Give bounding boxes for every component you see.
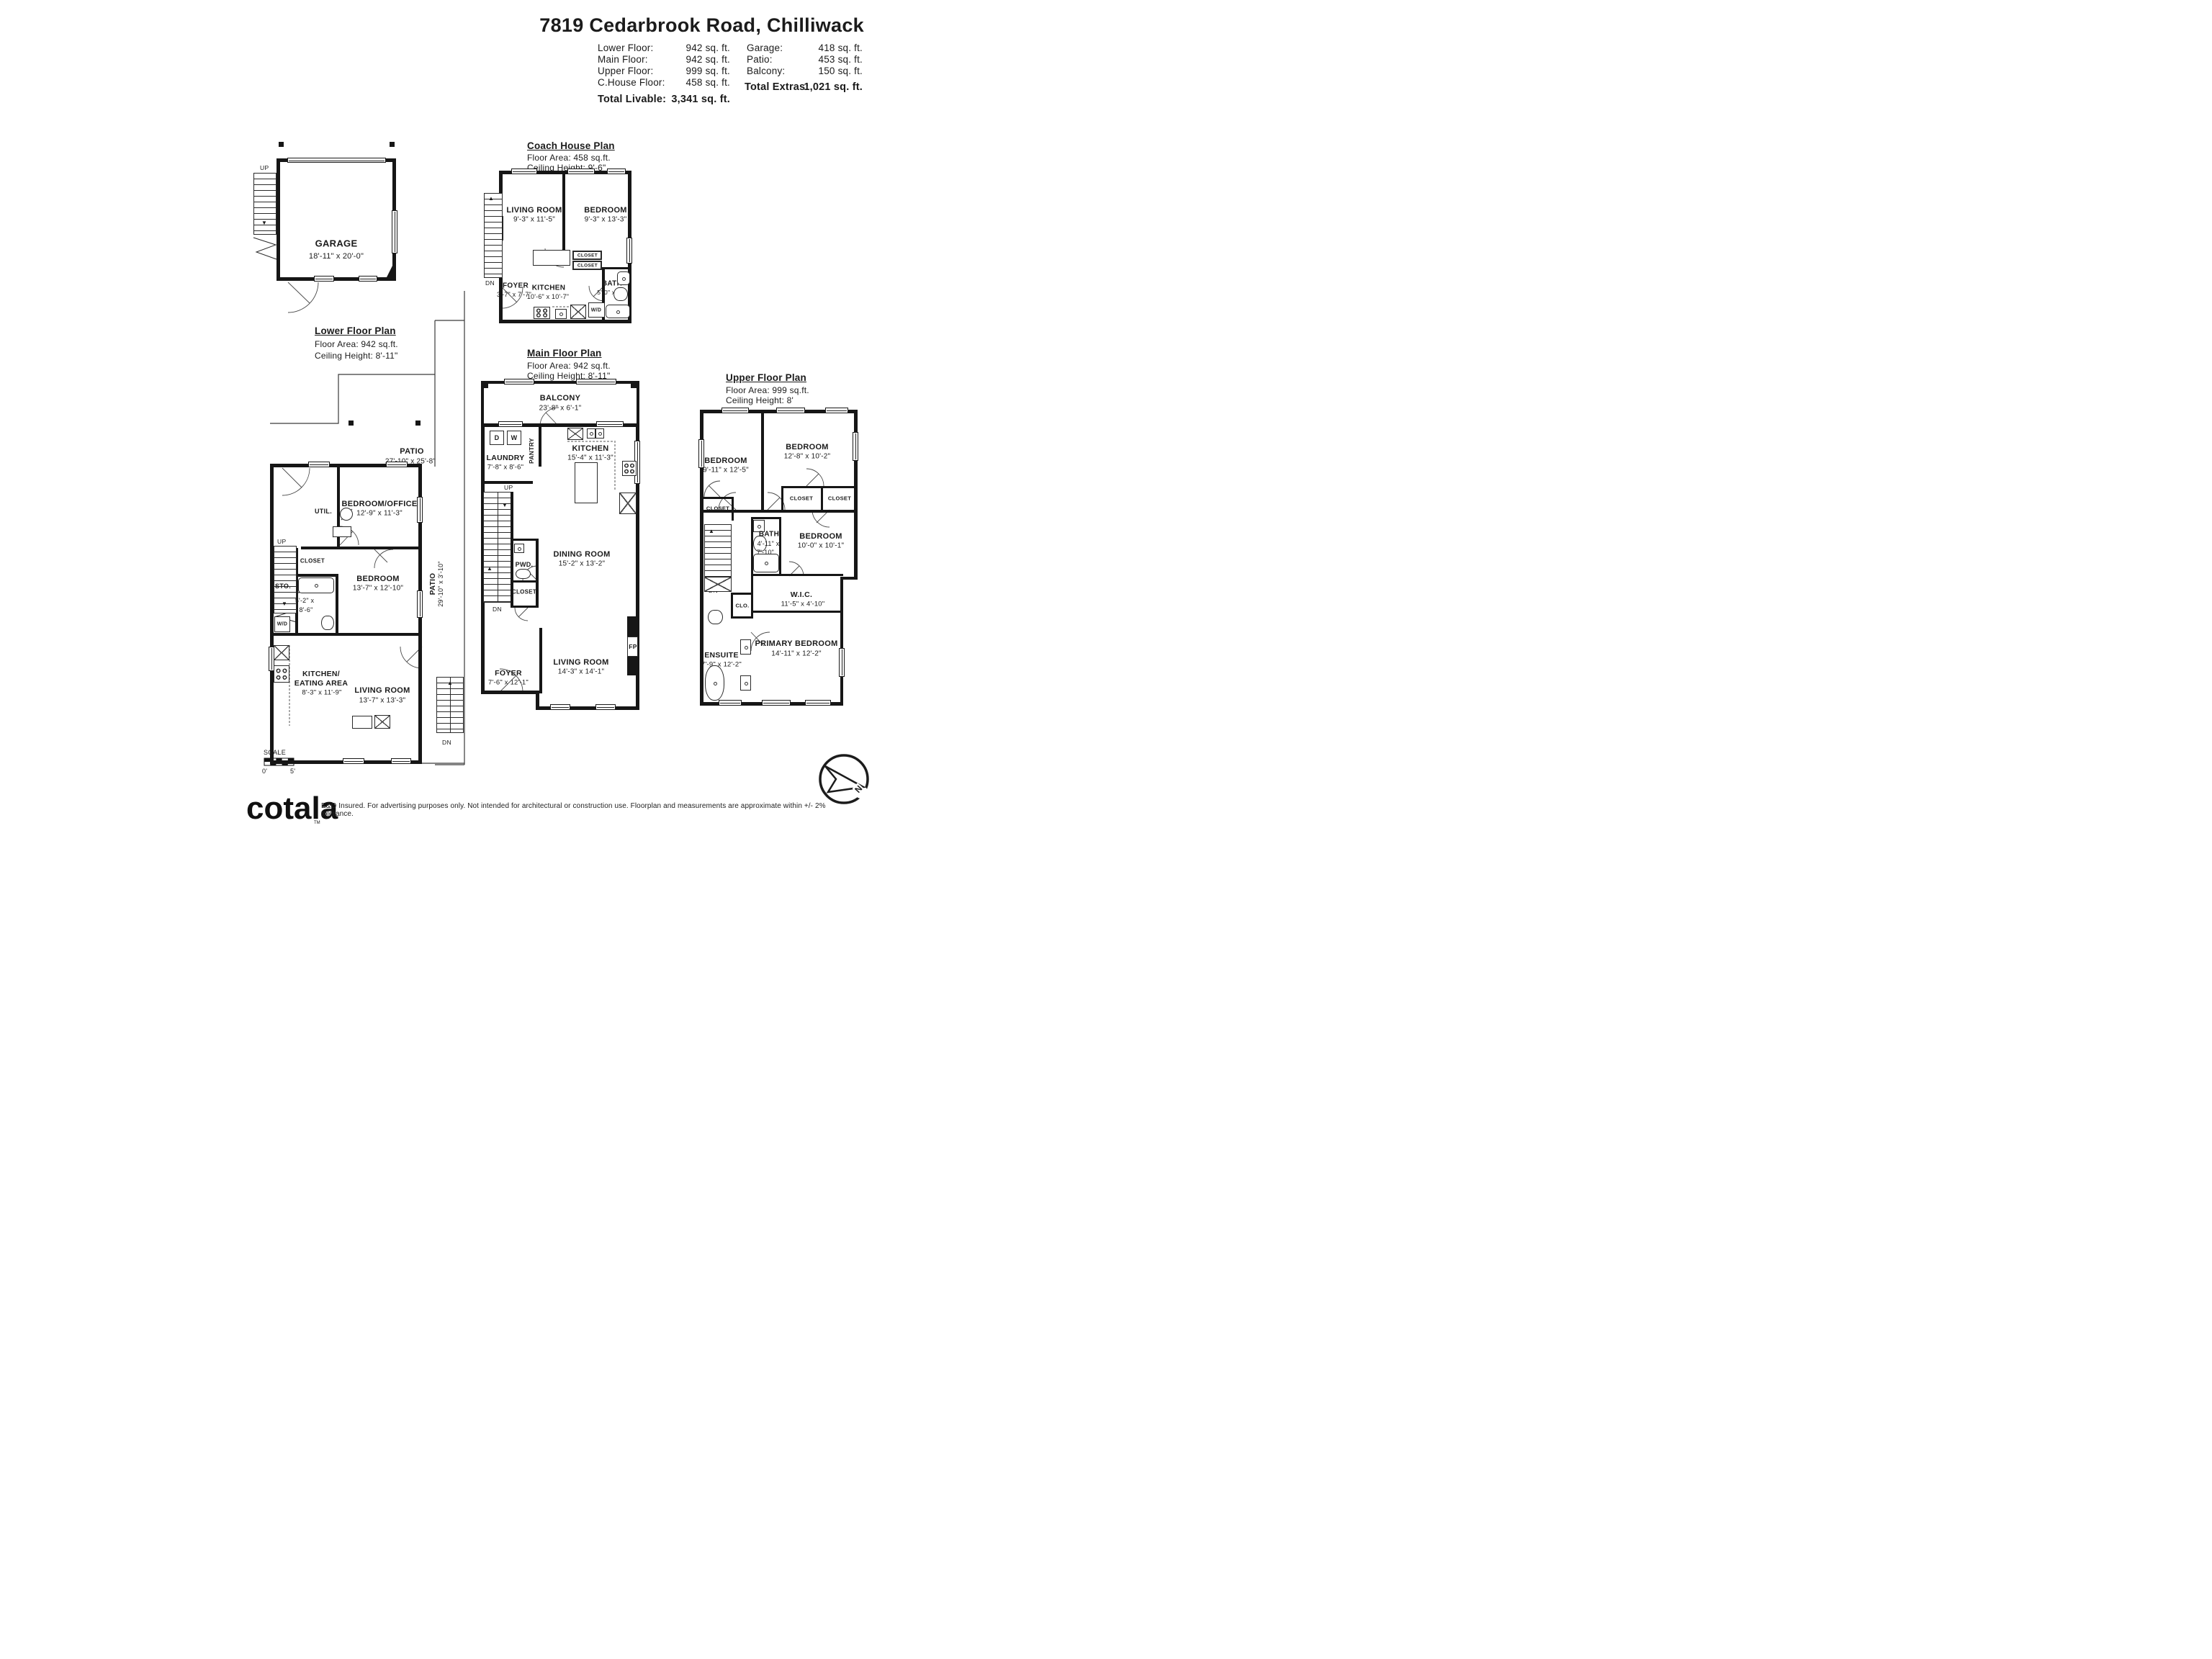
washer-dryer-label: W/D — [277, 622, 288, 627]
stat-value-main-floor: 942 sq. ft. — [648, 54, 730, 65]
stairs-up-arrow-icon: ▲ — [447, 680, 453, 686]
room-dims-laundry: 7'-8" x 8'-6" — [487, 464, 523, 472]
scale-label: SCALE — [264, 749, 286, 756]
room-label-kitchen-main: KITCHEN — [572, 444, 609, 453]
closet-label: CLOSET — [512, 589, 536, 595]
window — [719, 700, 742, 706]
closet-label: CLOSET — [577, 264, 598, 269]
room-label-lower-kitchen-1: KITCHEN/ — [302, 670, 340, 678]
garage-door — [287, 158, 386, 163]
range-icon — [567, 428, 583, 440]
window — [308, 462, 330, 467]
window — [343, 758, 364, 764]
stair-rail — [498, 492, 498, 603]
plan-title-main: Main Floor Plan — [527, 348, 602, 359]
fireplace-label: FP — [629, 643, 637, 650]
room-label-laundry: LAUNDRY — [486, 454, 524, 462]
dryer-label: D — [495, 434, 500, 441]
wall — [536, 539, 539, 608]
stairs-up-label: UP — [260, 164, 269, 171]
window — [576, 379, 616, 385]
washer-label: W — [511, 434, 518, 441]
wall — [336, 574, 338, 636]
stat-value-total-extras: 1,021 sq. ft. — [785, 81, 863, 93]
toilet-icon — [613, 287, 628, 301]
room-label-coach-foyer: FOYER — [503, 282, 529, 290]
stairs-dn-label: DN — [442, 739, 451, 746]
stove-burners-icon — [534, 307, 550, 319]
ensuite-sink-icon — [740, 675, 751, 691]
post-marker — [390, 142, 395, 147]
room-label-sto: STO. — [275, 583, 291, 590]
wall — [843, 577, 858, 580]
wall — [821, 486, 823, 510]
room-dims-coach-bedroom: 9'-3" x 13'-3" — [585, 216, 627, 224]
fridge-icon — [619, 493, 637, 514]
room-dims-balcony: 23'-8" x 6'-1" — [539, 405, 582, 413]
post-marker — [415, 421, 421, 426]
stove-burners-icon — [622, 461, 637, 476]
stat-value-balcony: 150 sq. ft. — [781, 66, 863, 76]
room-label-util: UTIL. — [315, 508, 332, 515]
room-dims-coach-kitchen: 10'-6" x 10'-7" — [527, 293, 569, 300]
page-title: 7819 Cedarbrook Road, Chilliwack — [461, 14, 864, 37]
toilet-icon — [708, 610, 723, 624]
room-dims-patio-side: 29'-10" x 3'-10" — [437, 544, 444, 624]
room-dims-garage: 18'-11" x 20'-0" — [309, 252, 364, 261]
window — [626, 238, 632, 264]
bath-sink-icon — [617, 271, 630, 285]
stat-label-garage: Garage: — [747, 42, 783, 53]
bathtub-icon — [606, 305, 630, 318]
room-dims-primary-bedroom: 14'-11" x 12'-2" — [771, 650, 822, 658]
wall — [511, 539, 539, 541]
window — [511, 168, 537, 174]
window — [607, 168, 626, 174]
balcony-outline — [481, 381, 639, 426]
window — [595, 704, 616, 710]
floorplan-sheet: 7819 Cedarbrook Road, Chilliwack Lower F… — [0, 0, 1106, 829]
window — [417, 590, 423, 618]
coach-house-outline — [499, 171, 631, 323]
stat-label-main-floor: Main Floor: — [598, 54, 648, 65]
plan-ceiling-lower: Ceiling Height: 8'-11" — [315, 351, 397, 361]
wall — [840, 577, 843, 705]
water-heater-icon — [340, 508, 353, 521]
fridge-icon — [274, 645, 289, 660]
room-label-coach-kitchen: KITCHEN — [532, 284, 566, 292]
room-dims-lower-bath-2: 8'-6" — [300, 606, 313, 613]
wall — [732, 497, 734, 521]
stairs-down-arrow-icon: ▼ — [282, 601, 287, 607]
plan-area-coach: Floor Area: 458 sq.ft. — [527, 153, 611, 163]
stat-value-garage: 418 sq. ft. — [781, 42, 863, 53]
closet-label: CLOSET — [706, 505, 729, 512]
stat-label-patio: Patio: — [747, 54, 773, 65]
closet-label: CLOSET — [828, 495, 851, 502]
window — [314, 276, 334, 282]
room-label-upper-bath: BATH — [759, 531, 779, 539]
kitchen-sink-icon — [595, 428, 604, 439]
window — [721, 408, 749, 413]
room-label-balcony: BALCONY — [540, 394, 581, 403]
stairs-up-arrow-icon: ▲ — [487, 566, 493, 572]
plan-title-lower: Lower Floor Plan — [315, 325, 396, 336]
stat-label-balcony: Balcony: — [747, 66, 785, 76]
wall — [539, 423, 541, 467]
kitchen-island — [352, 716, 372, 729]
compass-rose — [820, 755, 868, 803]
coach-stairs — [484, 193, 503, 278]
fridge-icon — [570, 305, 586, 319]
wall — [301, 547, 421, 549]
room-dims-lower-living: 13'-7" x 13'-3" — [359, 697, 406, 705]
bathtub-icon — [298, 577, 334, 593]
closet-label: CLOSET — [577, 253, 598, 258]
stairs-dn-label: DN — [493, 606, 502, 613]
washer-dryer-label: W/D — [591, 308, 602, 313]
wall — [761, 413, 764, 510]
stat-value-total-livable: 3,341 sq. ft. — [634, 94, 730, 105]
room-dims-upper-bath-1: 4'-11" x — [757, 540, 780, 547]
wall — [481, 691, 539, 694]
stove-burners-icon — [274, 665, 289, 683]
room-label-lower-kitchen-2: EATING AREA — [295, 679, 348, 688]
stat-value-patio: 453 sq. ft. — [781, 54, 863, 65]
room-dims-lower-bath-1: 5'-2" x — [295, 597, 314, 604]
scale-end-label: 5' — [290, 768, 295, 775]
wall — [336, 633, 421, 636]
stat-value-chouse-floor: 458 sq. ft. — [648, 77, 730, 88]
room-label-lower-bedroom: BEDROOM — [356, 575, 400, 583]
room-label-upper-bedroom2: BEDROOM — [786, 443, 829, 451]
window — [504, 379, 534, 385]
room-label-upper-bedroom1: BEDROOM — [704, 457, 747, 465]
wall — [602, 267, 631, 269]
closet-label: CLOSET — [790, 495, 813, 502]
window — [596, 421, 624, 427]
room-dims-lower-kitchen: 8'-3" x 11'-9" — [302, 689, 341, 697]
room-label-coach-living: LIVING ROOM — [506, 206, 562, 215]
wall — [731, 616, 753, 619]
window — [417, 497, 423, 523]
room-dims-upper-bedroom1: 9'-11" x 12'-5" — [703, 467, 749, 475]
stairs-up-label: UP — [277, 538, 286, 545]
stat-value-upper-floor: 999 sq. ft. — [648, 66, 730, 76]
kitchen-island — [575, 462, 598, 503]
kitchen-sink-icon — [587, 428, 595, 439]
post-marker — [482, 382, 488, 388]
window — [498, 421, 523, 427]
window — [825, 408, 848, 413]
stairs-up-label: UP — [504, 484, 513, 491]
room-label-ensuite: ENSUITE — [704, 651, 739, 660]
room-dims-lower-bedroom: 13'-7" x 12'-10" — [353, 585, 403, 593]
stat-label-upper-floor: Upper Floor: — [598, 66, 653, 76]
room-label-lower-living: LIVING ROOM — [354, 686, 410, 695]
bathtub-icon — [753, 554, 779, 572]
room-label-primary-bedroom: PRIMARY BEDROOM — [755, 639, 837, 648]
room-label-bedroom-office: BEDROOM/OFFICE — [341, 500, 417, 508]
room-dims-ensuite: 7'-9" x 12'-2" — [701, 661, 742, 669]
freestanding-tub-icon — [705, 665, 724, 701]
wall — [751, 574, 753, 618]
stat-value-lower-floor: 942 sq. ft. — [648, 42, 730, 53]
room-label-pwd: PWD. — [516, 561, 534, 568]
window — [567, 168, 595, 174]
stairs-down-arrow-icon: ▼ — [261, 220, 267, 226]
wall — [751, 574, 781, 576]
room-dims-living-main: 14'-3" x 14'-1" — [558, 668, 605, 676]
room-label-patio-side: PATIO — [429, 544, 437, 624]
window — [359, 276, 377, 282]
wall — [511, 606, 539, 608]
patio-side-label-group: PATIO 29'-10" x 3'-10" — [429, 544, 448, 624]
wall — [781, 486, 858, 488]
wall — [295, 574, 338, 577]
room-dims-upper-bedroom3: 10'-0" x 10'-1" — [798, 542, 845, 550]
plan-area-main: Floor Area: 942 sq.ft. — [527, 361, 611, 371]
plan-area-lower: Floor Area: 942 sq.ft. — [315, 339, 398, 349]
room-label-patio: PATIO — [400, 447, 423, 456]
wall — [781, 486, 783, 510]
wall — [270, 464, 274, 764]
window — [776, 408, 805, 413]
closet-label: CLOSET — [300, 558, 325, 565]
room-dims-upper-bedroom2: 12'-8" x 10'-2" — [784, 453, 831, 461]
window — [805, 700, 831, 706]
post-marker — [279, 142, 284, 147]
stairs-up-arrow-icon: ▲ — [488, 196, 494, 202]
room-label-dining: DINING ROOM — [553, 550, 610, 559]
wall — [511, 580, 539, 583]
scale-start-label: 0' — [262, 768, 267, 775]
wall — [751, 611, 843, 613]
dishwasher-icon — [555, 309, 567, 319]
wall — [781, 574, 843, 576]
room-dims-upper-bath-2: 7'-10" — [757, 549, 774, 556]
shower-icon — [704, 577, 732, 592]
plan-area-upper: Floor Area: 999 sq.ft. — [726, 385, 809, 395]
room-label-foyer-main: FOYER — [495, 669, 522, 678]
room-dims-dining: 15'-2" x 13'-2" — [559, 560, 606, 568]
room-label-upper-bedroom3: BEDROOM — [799, 532, 842, 541]
toilet-icon — [321, 616, 334, 630]
bed-furniture — [533, 250, 570, 266]
room-label-clo: CLO. — [735, 603, 749, 609]
room-dims-coach-foyer: 3'-7" x 7'-7" — [497, 291, 531, 298]
pwd-sink-icon — [514, 544, 524, 553]
cotala-trademark: TM — [314, 821, 320, 825]
stairs-up-arrow-icon: ▲ — [709, 529, 714, 534]
plan-title-upper: Upper Floor Plan — [726, 372, 806, 383]
room-label-pantry: PANTRY — [528, 438, 535, 464]
wall — [731, 593, 753, 595]
plan-title-coach: Coach House Plan — [527, 140, 615, 151]
toilet-icon — [516, 569, 531, 579]
plan-ceiling-upper: Ceiling Height: 8' — [726, 395, 793, 405]
stairs-down-arrow-icon: ▼ — [502, 503, 508, 508]
garage-outline — [276, 158, 396, 281]
room-label-coach-bedroom: BEDROOM — [584, 206, 627, 215]
sink-basin-icon — [374, 715, 390, 729]
post-marker — [631, 382, 637, 388]
window — [762, 700, 791, 706]
window — [386, 462, 408, 467]
wall — [731, 593, 733, 619]
room-dims-foyer-main: 7'-6" x 12'-1" — [488, 679, 529, 687]
room-dims-bedroom-office: 12'-9" x 11'-3" — [356, 510, 403, 518]
wall — [270, 633, 338, 636]
wall — [562, 174, 565, 250]
room-dims-coach-living: 9'-3" x 11'-5" — [513, 216, 555, 224]
disclaimer-text: E&O Insured. For advertising purposes on… — [321, 802, 840, 818]
window — [839, 648, 845, 677]
window — [698, 439, 704, 468]
post-marker — [349, 421, 354, 426]
wall — [751, 517, 781, 519]
window — [550, 704, 570, 710]
wall — [539, 628, 542, 693]
stat-label-lower-floor: Lower Floor: — [598, 42, 653, 53]
window — [392, 210, 397, 253]
wall — [703, 497, 733, 499]
room-dims-wic: 11'-5" x 4'-10" — [781, 601, 825, 608]
room-label-garage: GARAGE — [315, 238, 358, 249]
room-label-living-main: LIVING ROOM — [553, 658, 608, 667]
room-label-wic: W.I.C. — [791, 590, 812, 599]
window — [391, 758, 411, 764]
stairs-dn-label: DN — [485, 279, 495, 287]
utility-panel — [333, 526, 351, 537]
window — [853, 432, 858, 461]
ensuite-sink-icon — [740, 639, 751, 655]
room-dims-kitchen-main: 15'-4" x 11'-3" — [567, 454, 613, 462]
